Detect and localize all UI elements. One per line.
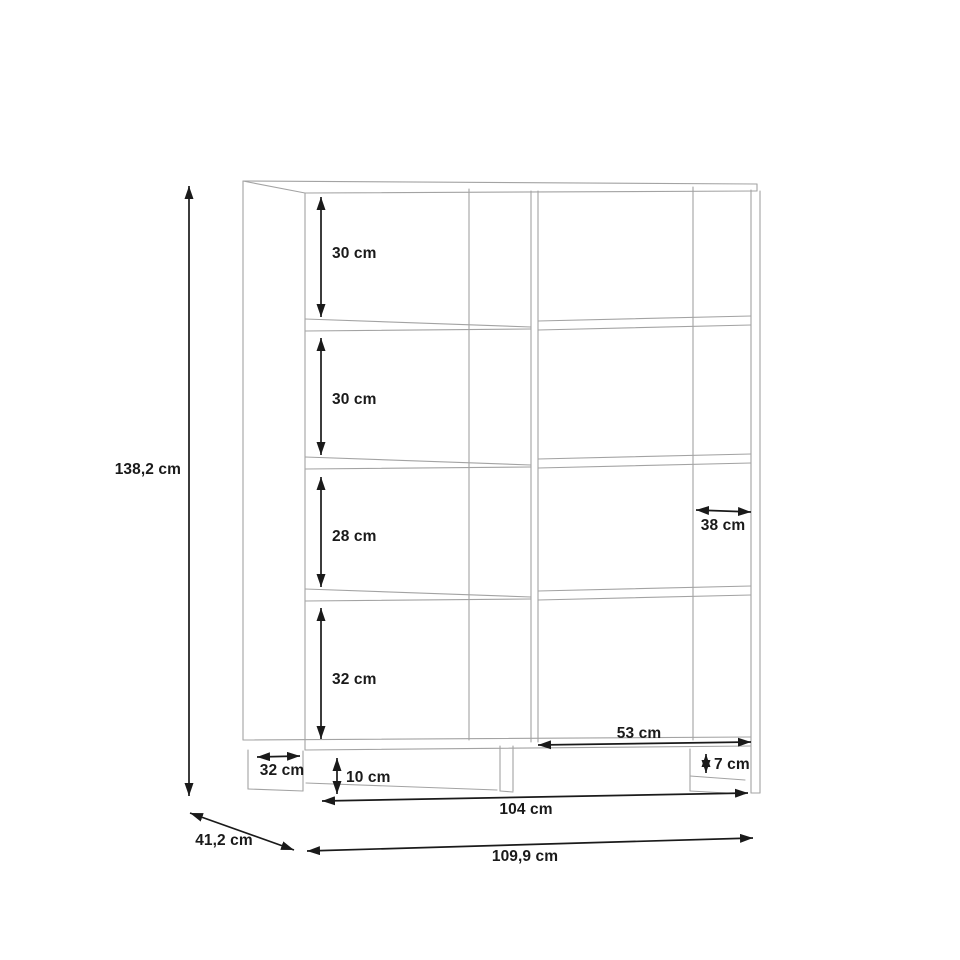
cabinet-bottom-front-edge [305,746,751,750]
dim-compartment-2-label: 30 cm [332,391,376,408]
dim-total-height: 138,2 cm [115,186,189,796]
dim-base-foot-depth: 32 cm [257,756,304,779]
dim-compartment-1-label: 30 cm [332,245,376,262]
shelf2-left-top [305,457,531,465]
cabinet-top-back-edge [243,181,757,184]
dim-shelf-depth: 38 cm [696,510,751,534]
shelf1-left-top [305,319,531,327]
dim-compartment-2-height: 30 cm [321,338,376,455]
shelf2-right-top [538,454,751,459]
dim-right-compartment-width-label: 53 cm [617,725,661,742]
plinth-rail-bottom-right [690,776,745,780]
shelf2-left-front [305,467,531,469]
dim-compartment-3-label: 28 cm [332,528,376,545]
shelf1-right-front [538,325,751,330]
dim-base-height: 10 cm [337,758,390,794]
dim-compartment-4-height: 32 cm [321,608,376,739]
dim-right-compartment-width: 53 cm [538,725,751,745]
shelf3-right-front [538,595,751,600]
dim-total-height-label: 138,2 cm [115,461,181,478]
dim-inner-width-label: 104 cm [499,801,552,818]
dim-plinth-rail-height: 7 cm [706,754,750,773]
cabinet-bottom-back-edge [243,737,751,740]
shelf1-right-top [538,316,751,321]
shelf1-left-front [305,329,531,331]
dimension-drawing: 138,2 cm 30 cm 30 cm 28 cm 32 cm 38 cm [0,0,960,960]
shelf2-right-front [538,463,751,468]
dim-total-width: 109,9 cm [307,838,753,865]
middle-foot-bottom-edge [500,791,513,792]
dim-compartment-1-height: 30 cm [321,197,376,317]
cabinet-top-left-slant [243,181,305,193]
dim-base-height-label: 10 cm [346,769,390,786]
dim-compartment-3-height: 28 cm [321,477,376,587]
dim-inner-width: 104 cm [322,793,748,818]
dim-base-foot-depth-label: 32 cm [260,762,304,779]
left-foot-bottom-edge [248,789,303,791]
dim-shelf-depth-label: 38 cm [701,517,745,534]
shelf3-left-top [305,589,531,597]
diagram-canvas: 138,2 cm 30 cm 30 cm 28 cm 32 cm 38 cm [0,0,960,960]
shelf3-left-front [305,599,531,601]
dimension-annotations: 138,2 cm 30 cm 30 cm 28 cm 32 cm 38 cm [115,186,753,865]
dim-total-depth-label: 41,2 cm [195,832,253,849]
dim-total-width-label: 109,9 cm [492,848,558,865]
dim-plinth-rail-height-label: 7 cm [714,756,750,773]
dim-compartment-4-label: 32 cm [332,671,376,688]
plinth-rail-bottom-left [306,783,497,790]
shelf3-right-top [538,586,751,591]
dim-total-depth: 41,2 cm [190,813,294,850]
